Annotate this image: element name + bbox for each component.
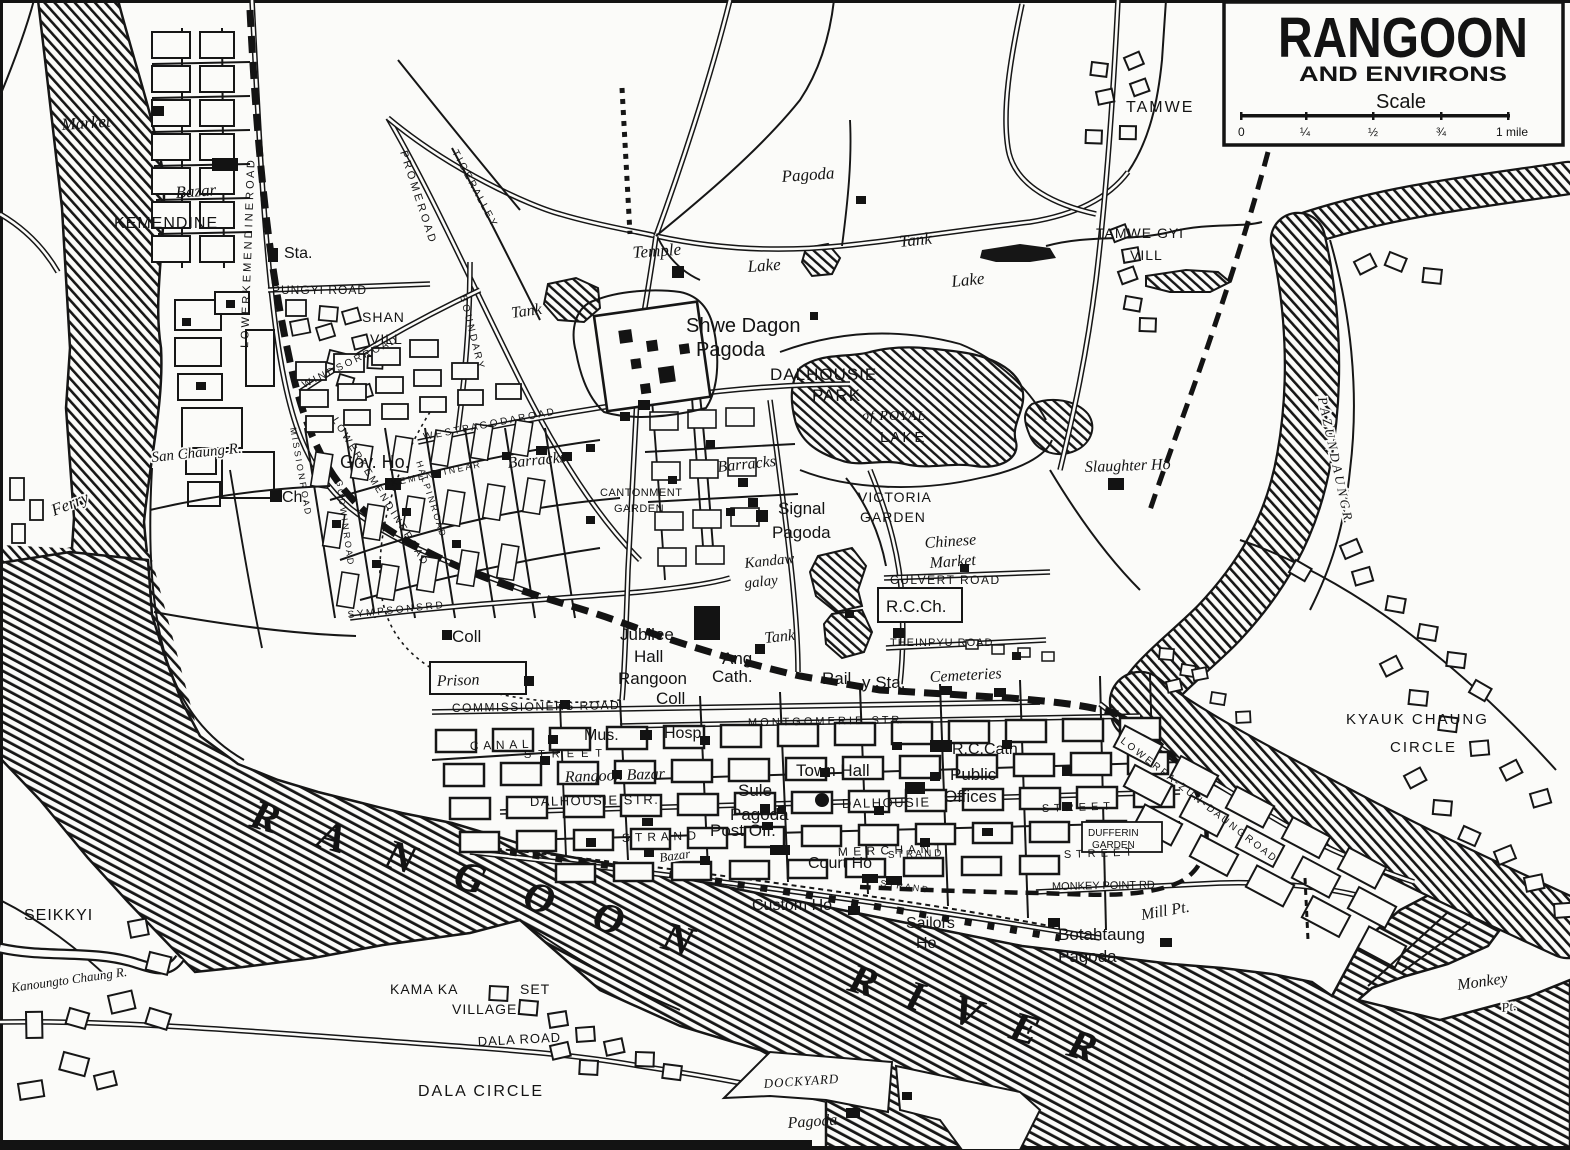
svg-text:DUFFERIN: DUFFERIN (1088, 828, 1139, 839)
svg-text:Hosp!: Hosp! (664, 725, 706, 742)
svg-text:Coll: Coll (452, 627, 481, 646)
svg-text:1 mile: 1 mile (1496, 125, 1528, 139)
svg-text:0: 0 (1238, 125, 1245, 139)
svg-text:C A N A L: C A N A L (470, 737, 530, 753)
svg-text:of ROYAL: of ROYAL (862, 409, 926, 424)
svg-text:Town Hall: Town Hall (796, 761, 870, 780)
svg-text:Rail: Rail (822, 669, 851, 688)
svg-text:Botahtaung: Botahtaung (1058, 925, 1145, 944)
svg-text:SEIKKYI: SEIKKYI (24, 907, 93, 924)
svg-text:Pagoda: Pagoda (786, 1112, 838, 1133)
svg-text:½: ½ (1368, 125, 1378, 139)
svg-text:RANGOON: RANGOON (1278, 6, 1528, 70)
svg-text:THEINPYU ROAD: THEINPYU ROAD (890, 637, 993, 649)
svg-text:Sule: Sule (738, 781, 772, 800)
svg-text:Shwe Dagon: Shwe Dagon (686, 315, 801, 337)
svg-text:DALA CIRCLE: DALA CIRCLE (418, 1083, 544, 1100)
svg-text:R.C.Ch.: R.C.Ch. (886, 597, 946, 616)
svg-text:Jubilee: Jubilee (620, 625, 674, 644)
svg-text:Ho.: Ho. (916, 935, 941, 952)
svg-text:CANTONMENT: CANTONMENT (600, 487, 682, 499)
svg-text:Hall: Hall (634, 647, 663, 666)
svg-text:y Sta.: y Sta. (862, 673, 905, 692)
svg-text:Public: Public (950, 765, 997, 784)
svg-text:SHAN: SHAN (362, 309, 405, 325)
svg-text:KEMENDINE: KEMENDINE (114, 215, 218, 232)
svg-text:Lake: Lake (949, 269, 985, 292)
svg-text:Chinese: Chinese (924, 531, 977, 552)
svg-text:DALHOUSIE: DALHOUSIE (842, 794, 931, 811)
svg-text:PARK: PARK (812, 386, 861, 405)
svg-text:Pt.: Pt. (1499, 998, 1517, 1015)
svg-text:S T R E E T: S T R E E T (524, 748, 604, 761)
svg-text:R.C.Cath: R.C.Cath (952, 741, 1018, 758)
svg-text:S T R A N D: S T R A N D (888, 848, 942, 861)
svg-text:Mus.: Mus. (584, 727, 619, 744)
svg-text:Pagoda: Pagoda (772, 523, 831, 542)
svg-text:Pagoda: Pagoda (696, 339, 766, 361)
svg-text:Sta.: Sta. (284, 245, 312, 262)
svg-text:AND ENVIRONS: AND ENVIRONS (1299, 63, 1507, 86)
svg-text:LAKE: LAKE (880, 429, 926, 446)
svg-text:Pagoda: Pagoda (1058, 947, 1117, 966)
svg-text:Market: Market (928, 552, 977, 572)
svg-text:Tank: Tank (764, 627, 797, 647)
svg-text:TAMWE GYI: TAMWE GYI (1096, 225, 1184, 241)
svg-text:Prison: Prison (436, 672, 480, 691)
svg-text:DALHOUSIE: DALHOUSIE (770, 365, 877, 384)
svg-text:S T R E E T: S T R E E T (1042, 801, 1111, 815)
svg-text:CULVERT ROAD: CULVERT ROAD (890, 573, 1001, 587)
svg-text:S T R E E T: S T R E E T (1064, 847, 1133, 861)
svg-text:Coll: Coll (656, 689, 685, 708)
svg-text:Signal: Signal (778, 499, 825, 518)
svg-text:GARDEN: GARDEN (614, 503, 664, 515)
svg-text:Post Off.: Post Off. (710, 821, 776, 840)
svg-text:S T R A N D: S T R A N D (622, 828, 698, 845)
svg-text:¾: ¾ (1436, 125, 1447, 139)
svg-text:MONKEY POINT RD: MONKEY POINT RD (1052, 879, 1155, 893)
svg-text:COMMISSIONERS ROAD: COMMISSIONERS ROAD (452, 698, 621, 715)
svg-text:Rangoon Bazar: Rangoon Bazar (564, 765, 666, 786)
svg-text:Rangoon: Rangoon (618, 669, 687, 688)
svg-text:Cath.: Cath. (712, 667, 753, 686)
svg-text:CIRCLE: CIRCLE (1390, 739, 1457, 756)
svg-text:VICTORIA: VICTORIA (858, 489, 932, 505)
svg-text:Tank: Tank (898, 229, 933, 251)
svg-text:Ang: Ang (722, 649, 752, 668)
svg-text:Offices: Offices (944, 787, 997, 806)
svg-text:Pagoda: Pagoda (780, 163, 835, 186)
svg-text:GARDEN: GARDEN (860, 509, 926, 525)
svg-text:Sailors: Sailors (906, 915, 955, 932)
svg-text:DALHOUSIE STR.: DALHOUSIE STR. (530, 792, 660, 809)
svg-text:Market: Market (60, 112, 113, 135)
svg-text:SET: SET (520, 981, 550, 997)
svg-text:Scale: Scale (1376, 91, 1426, 113)
svg-text:Lake: Lake (746, 255, 782, 276)
svg-text:VILLAGE: VILLAGE (452, 1001, 517, 1017)
svg-text:PUNGYI ROAD: PUNGYI ROAD (272, 283, 367, 297)
svg-text:Court Ho: Court Ho (808, 855, 872, 872)
svg-text:VILL: VILL (1130, 247, 1163, 263)
svg-text:Custom Ho.: Custom Ho. (752, 897, 836, 914)
svg-text:¼: ¼ (1300, 125, 1311, 139)
svg-text:KYAUK CHAUNG: KYAUK CHAUNG (1346, 711, 1489, 728)
svg-text:Bazar: Bazar (175, 180, 217, 202)
svg-text:Slaughter Ho: Slaughter Ho (1085, 456, 1171, 476)
svg-text:Temple: Temple (632, 240, 682, 262)
svg-text:TAMWE: TAMWE (1126, 99, 1194, 116)
svg-text:KAMA KA: KAMA KA (390, 981, 458, 997)
